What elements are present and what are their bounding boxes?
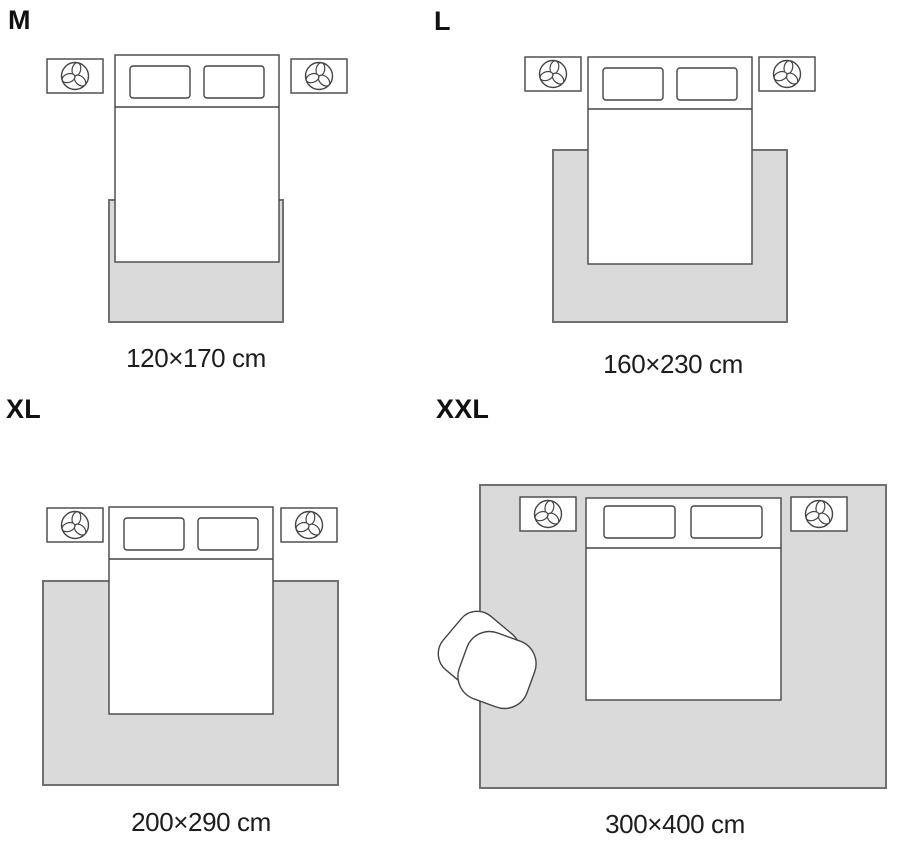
nightstand-left: [47, 59, 103, 93]
size-diagrams-canvas: [0, 0, 900, 850]
diagram-size-xxl: [430, 485, 886, 788]
bed-xxl: [586, 498, 781, 700]
size-label-xl: XL: [6, 396, 41, 423]
nightstand-right: [759, 57, 815, 91]
bed-xl: [109, 507, 273, 714]
nightstand-right: [281, 508, 337, 542]
nightstand-left: [525, 57, 581, 91]
diagram-size-l: [525, 57, 815, 322]
bed-l: [588, 57, 752, 264]
size-label-m: M: [8, 7, 31, 34]
bed-m: [115, 55, 279, 262]
diagram-size-xl: [43, 507, 338, 785]
nightstand-left: [520, 497, 576, 531]
size-label-l: L: [434, 8, 451, 35]
size-caption-l: 160×230 cm: [603, 349, 743, 380]
size-label-xxl: XXL: [436, 396, 489, 423]
nightstand-right: [791, 497, 847, 531]
rug-size-guide: M L XL XXL 120×170 cm 160×230 cm 200×290…: [0, 0, 900, 850]
nightstand-left: [47, 508, 103, 542]
size-caption-xxl: 300×400 cm: [605, 809, 745, 840]
size-caption-xl: 200×290 cm: [131, 807, 271, 838]
nightstand-right: [291, 59, 347, 93]
size-caption-m: 120×170 cm: [126, 343, 266, 374]
diagram-size-m: [47, 55, 347, 322]
